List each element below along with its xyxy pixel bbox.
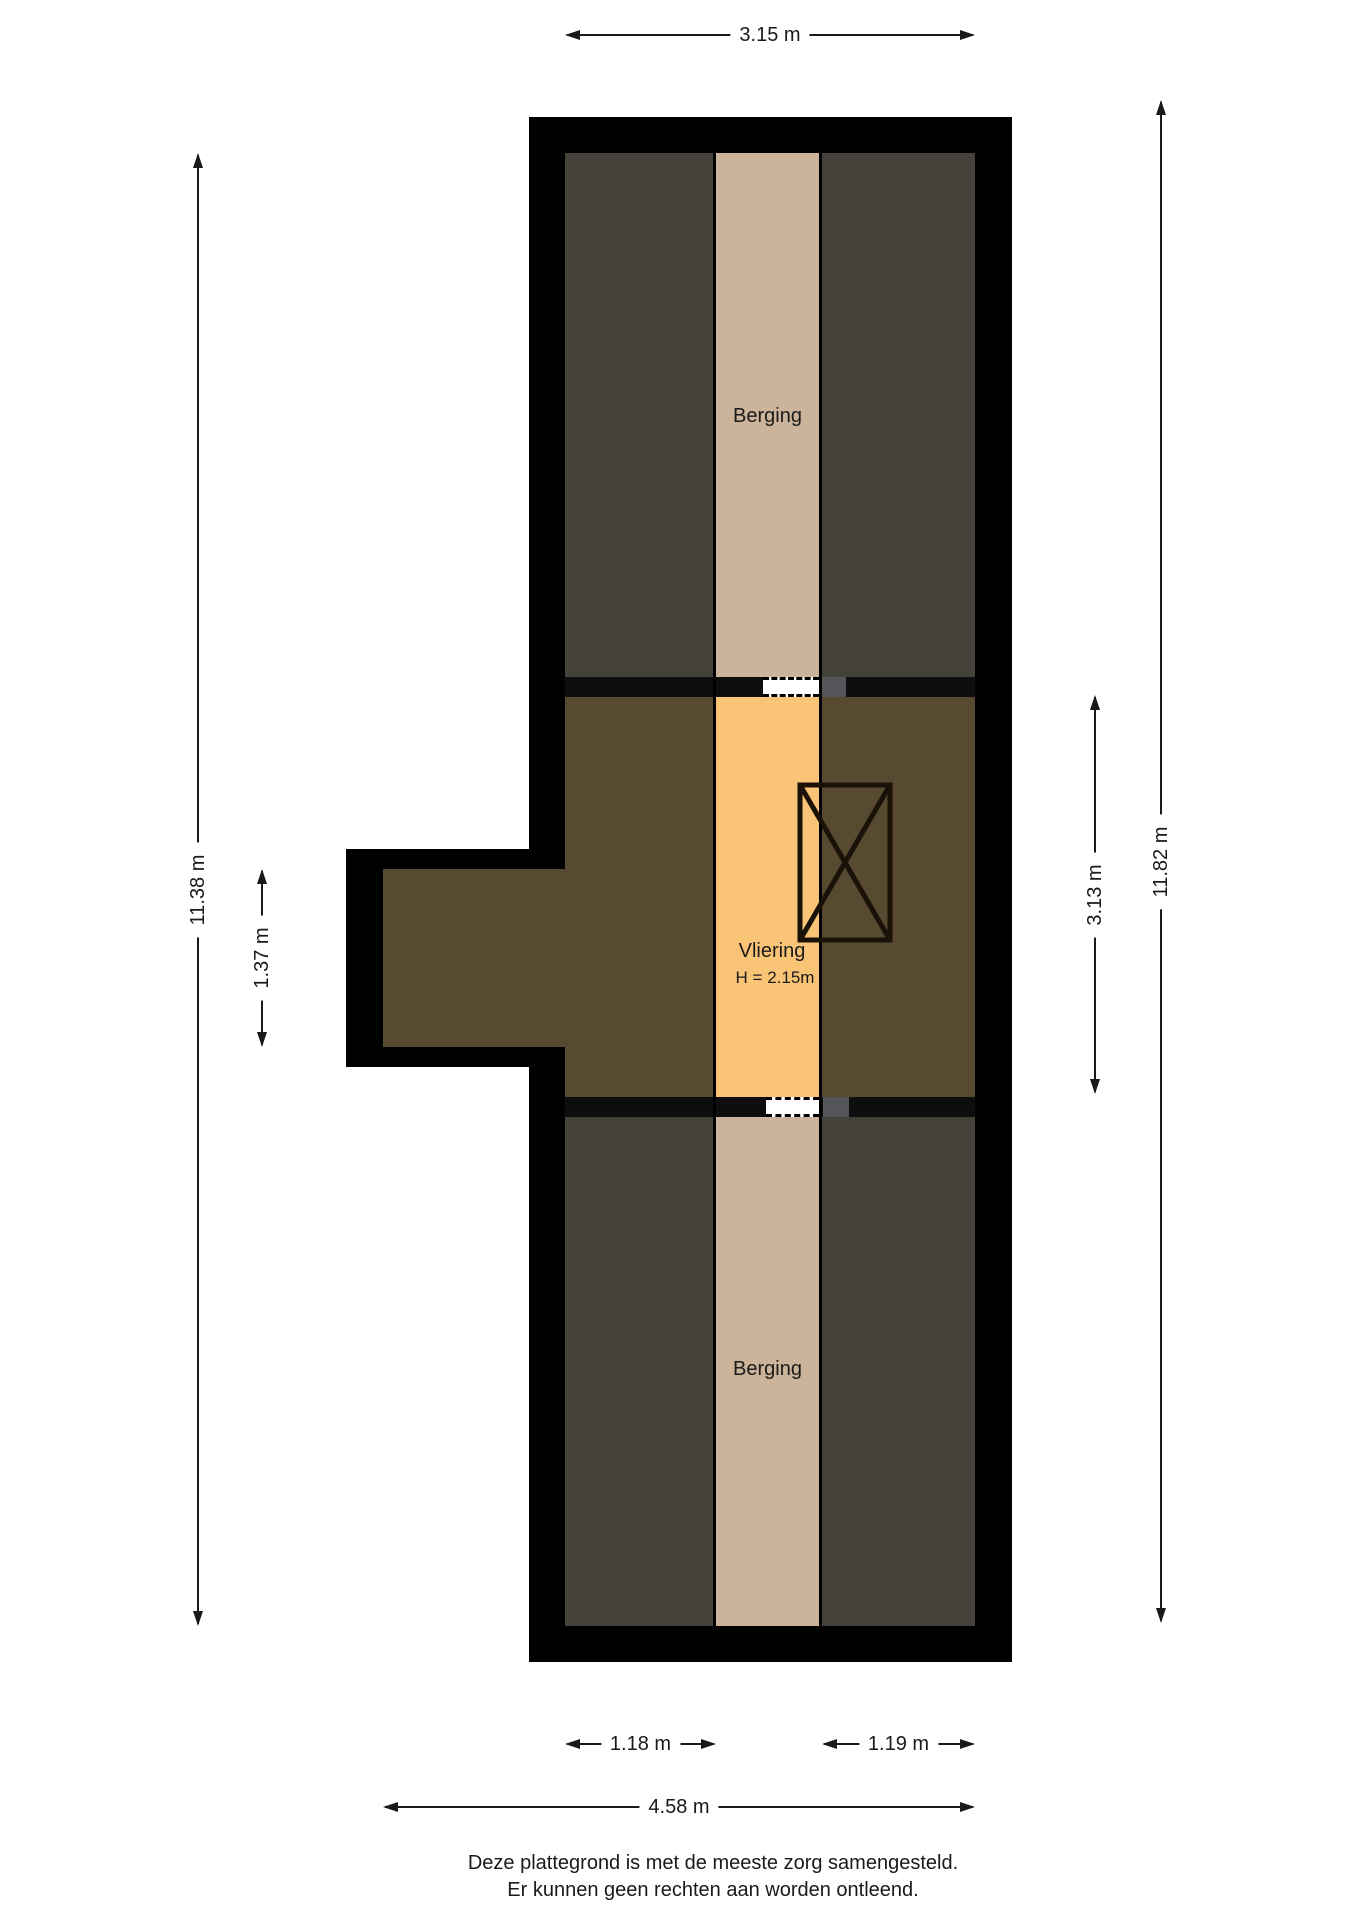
floor-plan-canvas: Berging Vliering H = 2.15m Berging 3.15 …	[0, 0, 1358, 1920]
door-opening-lower	[766, 1097, 819, 1117]
dimension-label: 11.38 m	[186, 842, 210, 937]
door-opening-upper	[763, 677, 819, 697]
dimension-vliering-height: 3.13 m	[1083, 695, 1107, 1094]
room-label-berging-top: Berging	[713, 405, 822, 428]
room-label-vliering-height: H = 2.15m	[700, 968, 850, 988]
dimension-bottom-left-room: 1.18 m	[565, 1732, 716, 1756]
corridor-wall-line-left	[713, 153, 716, 1626]
dimension-label: 3.15 m	[730, 23, 809, 47]
dimension-label: 1.19 m	[859, 1732, 938, 1756]
disclaimer-line-1: Deze plattegrond is met de meeste zorg s…	[363, 1850, 1063, 1877]
dimension-label: 1.37 m	[250, 915, 274, 1000]
arrowhead-right-icon	[960, 1802, 975, 1812]
dimension-top-width: 3.15 m	[565, 23, 975, 47]
room-label-vliering: Vliering	[697, 940, 847, 963]
arrowhead-down-icon	[257, 1032, 267, 1047]
arrowhead-right-icon	[960, 30, 975, 40]
room-label-berging-bottom: Berging	[713, 1358, 822, 1381]
stair-opening-icon	[797, 782, 893, 943]
arrowhead-right-icon	[701, 1739, 716, 1749]
bump-out-interior	[383, 869, 567, 1047]
room-berging-top-left-area	[565, 153, 713, 677]
dimension-bump-height: 1.37 m	[250, 869, 274, 1047]
arrowhead-right-icon	[960, 1739, 975, 1749]
door-jamb-upper	[822, 677, 846, 697]
dimension-left-height: 11.38 m	[186, 153, 210, 1626]
dimension-right-height: 11.82 m	[1149, 100, 1173, 1623]
room-berging-bottom-right-area	[822, 1117, 975, 1626]
dimension-label: 3.13 m	[1083, 852, 1107, 937]
arrowhead-down-icon	[1156, 1608, 1166, 1623]
dimension-label: 11.82 m	[1149, 814, 1173, 909]
disclaimer-line-2: Er kunnen geen rechten aan worden ontlee…	[363, 1877, 1063, 1904]
dimension-bottom-right-room: 1.19 m	[822, 1732, 975, 1756]
room-berging-bottom-left-area	[565, 1117, 713, 1626]
door-jamb-lower	[823, 1097, 849, 1117]
arrowhead-down-icon	[193, 1611, 203, 1626]
room-berging-top-right-area	[822, 153, 975, 677]
arrowhead-down-icon	[1090, 1079, 1100, 1094]
dimension-label: 4.58 m	[639, 1795, 718, 1819]
disclaimer-text: Deze plattegrond is met de meeste zorg s…	[363, 1850, 1063, 1904]
dimension-label: 1.18 m	[601, 1732, 680, 1756]
dimension-bottom-total: 4.58 m	[383, 1795, 975, 1819]
